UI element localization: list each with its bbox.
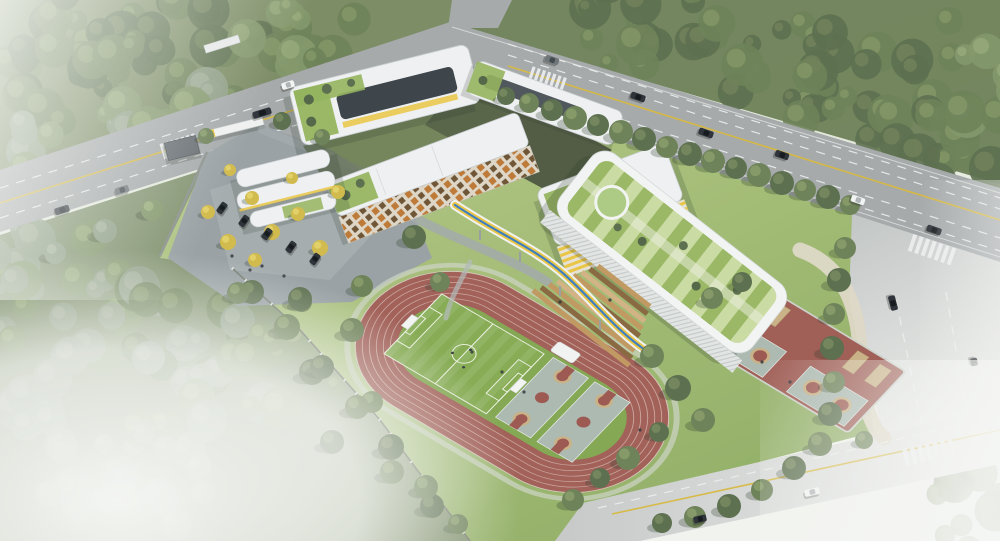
mist-right-edge bbox=[920, 180, 1000, 541]
aerial-rendering-stage bbox=[0, 0, 1000, 541]
person-dot bbox=[608, 298, 611, 301]
person-dot bbox=[522, 390, 525, 393]
person-dot bbox=[470, 350, 473, 353]
campus-aerial-rendering bbox=[0, 0, 1000, 541]
person-dot bbox=[558, 300, 561, 303]
person-dot bbox=[500, 370, 503, 373]
person-dot bbox=[638, 428, 641, 431]
